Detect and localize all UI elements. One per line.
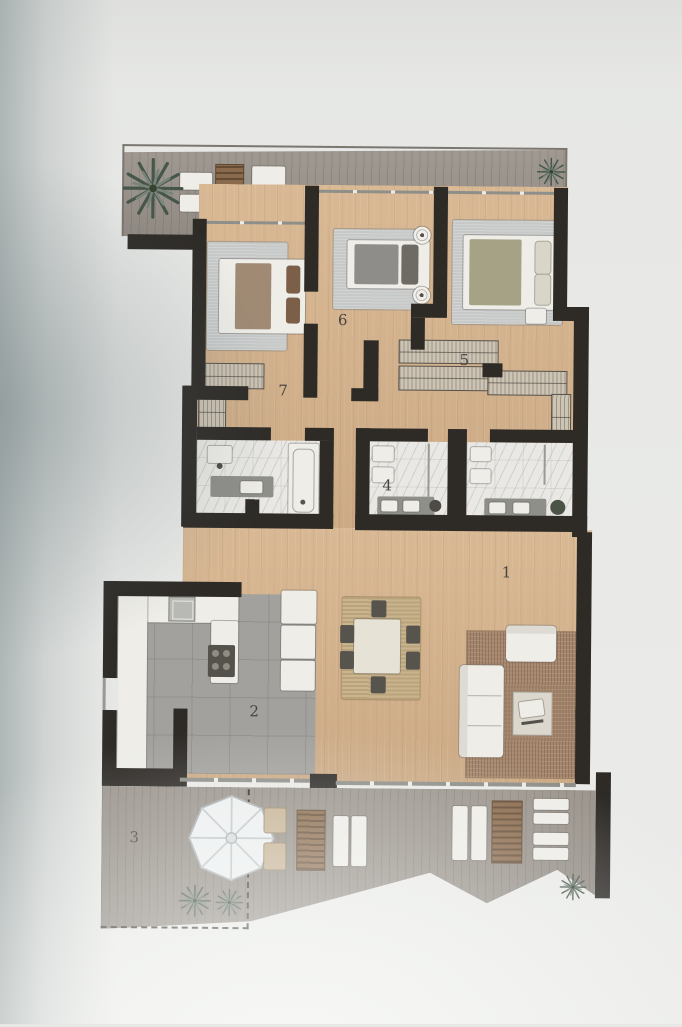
room-label-kitchen: 2 — [249, 702, 259, 720]
palm-plant-icon — [536, 157, 566, 187]
floor-plan-photo: 1 2 3 4 5 6 7 — [0, 0, 682, 1024]
burner-icon — [212, 663, 219, 670]
wall — [305, 428, 334, 441]
wall — [106, 581, 242, 597]
book-line — [521, 719, 543, 725]
sink — [240, 481, 262, 493]
dining-chair — [340, 651, 354, 669]
sun-lounger — [333, 816, 348, 866]
room-label-bedroom-middle: 6 — [338, 311, 348, 329]
coffee-table — [513, 693, 551, 735]
palm-plant-icon — [559, 873, 587, 901]
drain-icon — [300, 500, 305, 505]
bedroom-middle-bed — [347, 240, 429, 289]
toilet — [373, 446, 394, 461]
sink-basin — [172, 601, 193, 620]
round-side-table — [414, 227, 431, 244]
dining-chair — [371, 676, 386, 693]
kitchen-sink — [169, 598, 194, 621]
terrace-wood-table — [492, 801, 522, 862]
sink — [489, 502, 505, 513]
wall — [482, 363, 502, 377]
sofa-back — [459, 665, 468, 757]
sun-lounger — [533, 833, 568, 845]
wall — [572, 307, 589, 537]
wall — [553, 188, 568, 316]
wardrobe — [197, 364, 263, 389]
sun-lounger — [534, 813, 569, 824]
sofa-cushion-line — [468, 695, 502, 696]
stove-cooktop — [208, 645, 235, 677]
toilet — [208, 446, 232, 463]
balcony-edge-top — [122, 144, 567, 150]
kitchen-counter-left — [117, 595, 148, 772]
sun-lounger — [471, 806, 486, 860]
wall — [355, 514, 587, 532]
pillow — [535, 242, 550, 274]
sun-lounger — [534, 799, 569, 810]
shower-glass — [543, 445, 545, 485]
duvet — [469, 239, 522, 305]
floor-plan: 1 2 3 4 5 6 7 — [0, 0, 682, 1027]
terrace-pouf — [264, 808, 285, 832]
round-side-table — [413, 287, 430, 304]
room-label-dressing-room: 7 — [278, 381, 288, 399]
wall — [575, 532, 592, 784]
pillow — [286, 266, 300, 294]
dining-chair — [406, 652, 420, 670]
wall — [245, 499, 259, 515]
dining-chair — [406, 626, 420, 644]
sun-lounger — [351, 816, 366, 866]
wall — [173, 709, 188, 787]
sliding-door-living — [336, 781, 576, 787]
books — [519, 699, 545, 718]
room-label-bathroom: 4 — [382, 476, 392, 494]
kitchen-appliance-column — [281, 590, 316, 623]
sofa-cushion-line — [467, 725, 501, 726]
wall — [191, 219, 207, 393]
sink — [403, 501, 419, 512]
toilet — [471, 447, 491, 461]
bidet — [471, 469, 491, 483]
burner-icon — [223, 650, 230, 657]
terrace-wood-table — [297, 811, 325, 870]
terrace-pouf — [264, 843, 285, 869]
terrace-lounger-pair — [452, 806, 486, 860]
shower-head-icon — [217, 463, 223, 469]
sofa — [459, 665, 504, 757]
wall — [433, 187, 448, 310]
pillow — [535, 275, 550, 305]
wall — [181, 386, 197, 527]
palm-plant-icon — [121, 156, 186, 221]
burner-icon — [212, 650, 219, 657]
parasol-icon — [187, 794, 276, 883]
sun-lounger — [452, 806, 467, 860]
kitchen-appliance-column — [281, 625, 315, 658]
wall — [595, 772, 611, 898]
sink — [513, 503, 529, 514]
terrace-lounger-pair — [333, 816, 366, 866]
bathtub — [288, 444, 319, 520]
bedroom-right-bench — [526, 309, 546, 324]
sun-lounger — [533, 848, 568, 860]
wall — [411, 304, 447, 318]
wall — [490, 429, 576, 443]
terrace-lounger-pair — [533, 833, 568, 861]
pillow — [286, 298, 300, 324]
dining-chair — [371, 600, 386, 617]
bedroom-right-bed — [463, 235, 556, 310]
bedroom-left-bed — [219, 259, 306, 334]
shower-drain-icon — [429, 500, 441, 512]
wall — [351, 388, 378, 401]
dining-chair — [340, 625, 354, 643]
wall — [102, 768, 180, 787]
palm-plant-icon — [215, 888, 244, 917]
burner-icon — [223, 663, 230, 670]
duvet — [235, 263, 272, 329]
pillow — [401, 245, 418, 285]
terrace-lounger-pair — [534, 799, 569, 825]
sliding-door-kitchen — [180, 778, 310, 783]
palm-plant-icon — [178, 884, 212, 918]
dining-table — [354, 619, 400, 673]
armchair-back — [506, 625, 556, 633]
wall — [197, 427, 271, 441]
duvet — [354, 244, 398, 284]
sun-lounger — [252, 166, 285, 186]
sink — [381, 500, 397, 511]
wall — [303, 324, 318, 398]
entry-door-line — [103, 678, 106, 710]
armchair — [506, 625, 556, 661]
vanity-counter — [210, 476, 273, 498]
room-label-bedroom-right: 5 — [459, 351, 469, 369]
kitchen-appliance-column — [281, 660, 315, 690]
wall — [304, 186, 319, 292]
wall — [411, 318, 425, 350]
room-label-living-room: 1 — [502, 563, 512, 581]
potted-plant-icon — [550, 500, 565, 515]
room-label-terrace: 3 — [129, 828, 139, 846]
